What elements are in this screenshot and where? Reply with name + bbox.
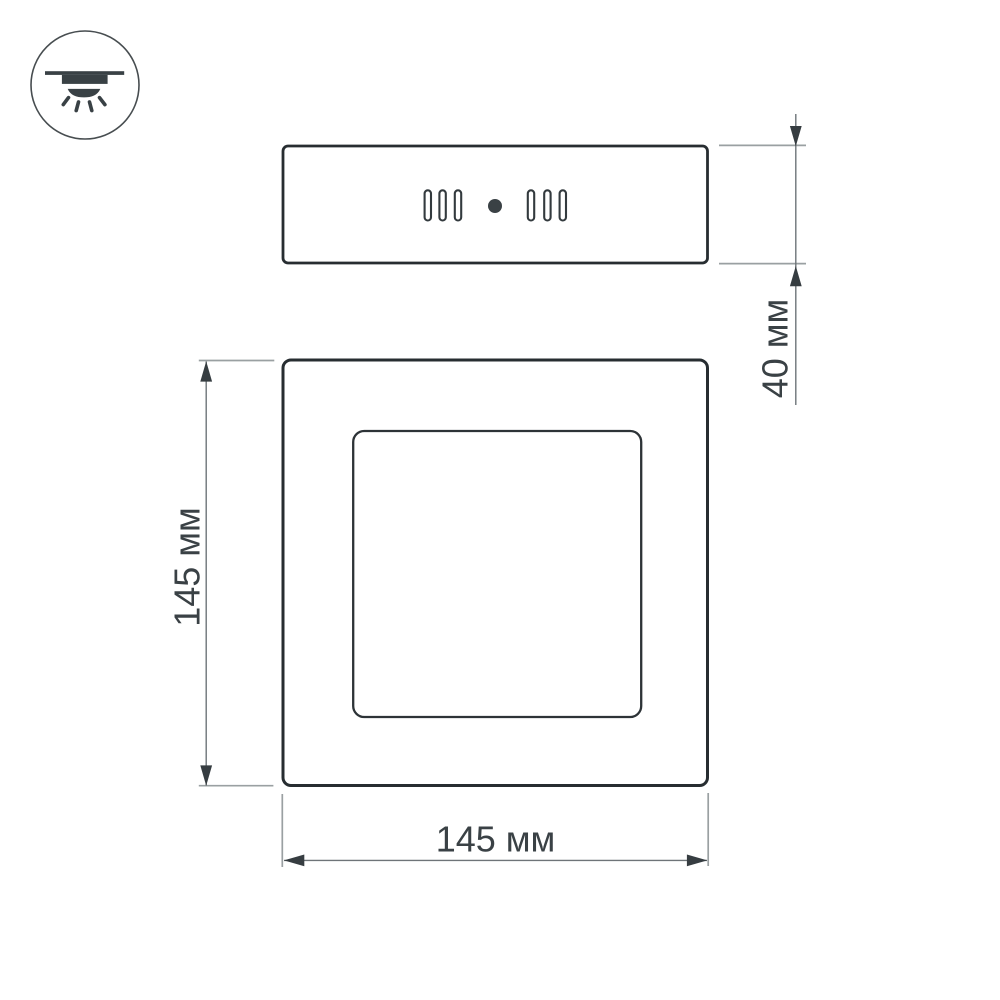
svg-text:145 мм: 145 мм [436, 819, 556, 860]
svg-text:145 мм: 145 мм [167, 507, 208, 627]
svg-text:40 мм: 40 мм [755, 299, 796, 399]
